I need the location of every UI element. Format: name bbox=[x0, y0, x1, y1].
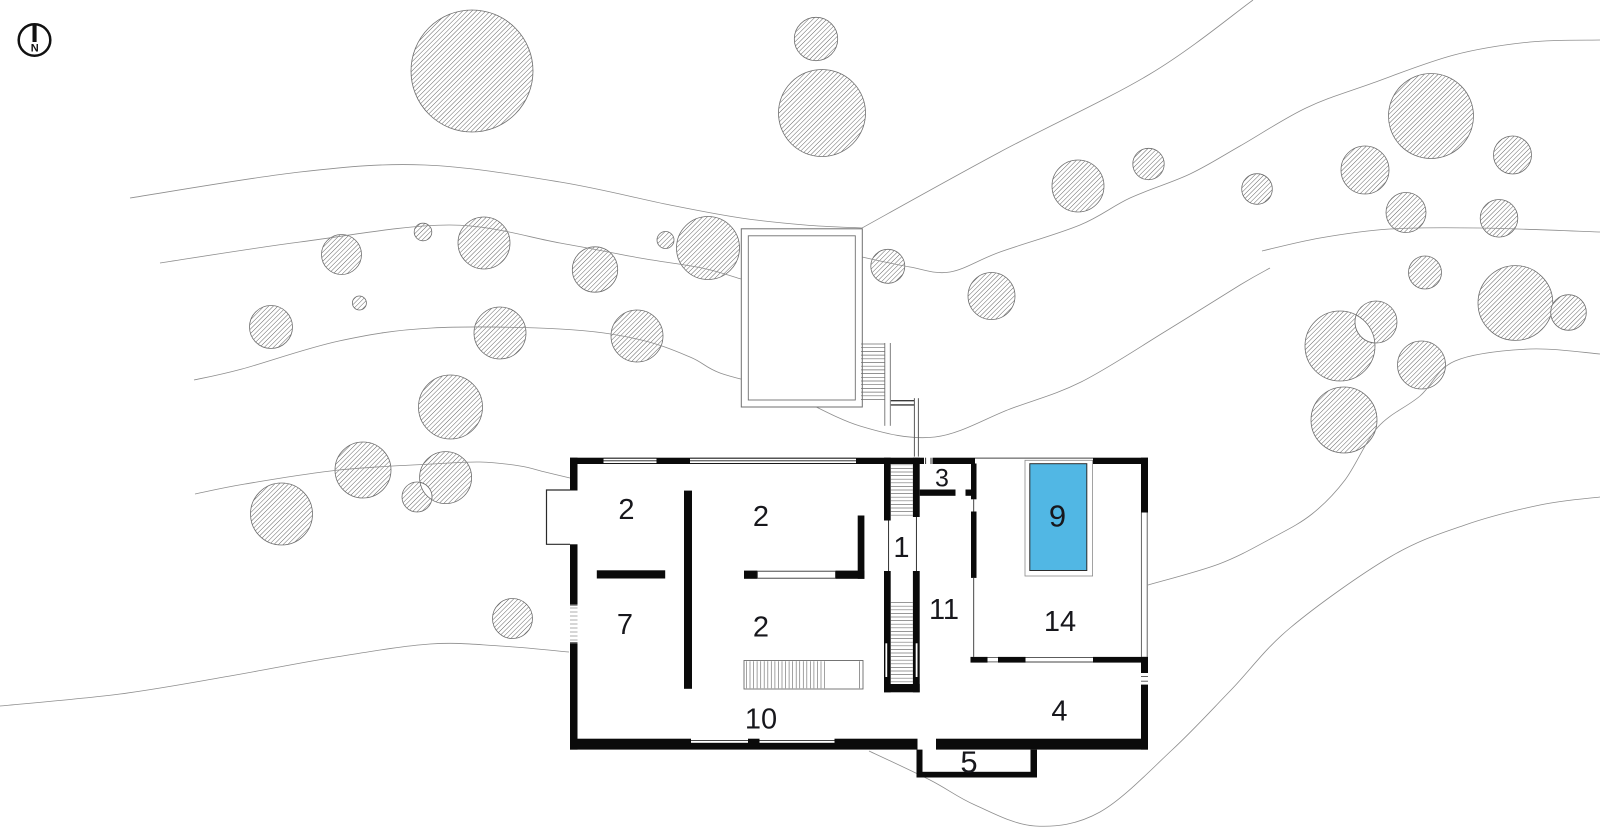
svg-text:2: 2 bbox=[753, 501, 769, 533]
svg-text:N: N bbox=[31, 43, 39, 55]
svg-text:5: 5 bbox=[960, 745, 977, 780]
svg-text:9: 9 bbox=[1049, 499, 1066, 534]
svg-text:3: 3 bbox=[935, 465, 949, 493]
svg-text:11: 11 bbox=[929, 594, 959, 626]
svg-text:1: 1 bbox=[893, 532, 909, 564]
svg-text:4: 4 bbox=[1051, 696, 1067, 728]
svg-text:14: 14 bbox=[1044, 606, 1076, 638]
svg-text:7: 7 bbox=[617, 609, 633, 641]
svg-text:2: 2 bbox=[618, 494, 634, 526]
svg-text:10: 10 bbox=[745, 704, 777, 736]
svg-text:2: 2 bbox=[753, 612, 769, 644]
